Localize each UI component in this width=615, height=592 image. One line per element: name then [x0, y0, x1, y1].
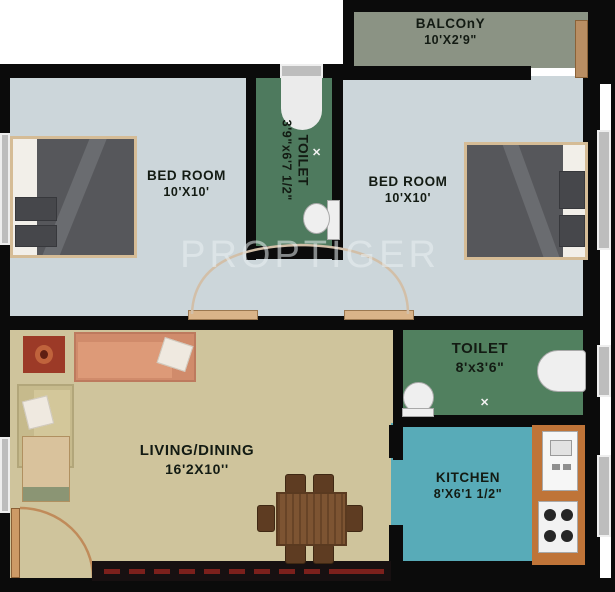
living-left-window: [0, 437, 10, 513]
dining-chair-icon: [345, 505, 363, 532]
toilet-right-wc-tank-icon: [402, 408, 434, 417]
dining-chair-icon: [285, 544, 306, 564]
dining-chair-icon: [313, 544, 334, 564]
bedroom-left-window: [0, 133, 10, 245]
kitchen-sink-icon: [542, 431, 578, 491]
sofa-top-icon: [74, 332, 196, 382]
kitchen-stub-bottom-wall: [389, 525, 403, 562]
balcony-door-leaf: [575, 20, 588, 78]
bedroom-left-label: BED ROOM 10'X10': [113, 168, 260, 201]
entry-mat: [92, 561, 391, 581]
toilet-top-label: TOILET 3'9"x6'7 1/2": [278, 100, 311, 220]
kitchen-stub-top-wall: [389, 425, 403, 458]
living-dining-label: LIVING/DINING 16'2X10'': [98, 442, 296, 478]
floor-plan: ✕ ✕ BALCOnY: [0, 0, 615, 592]
kitchen-label: KITCHEN 8'X6'1 1/2": [406, 470, 530, 503]
dining-chair-icon: [257, 505, 275, 532]
bedroom-right-door-sill: [344, 310, 414, 320]
cabinet-icon: [22, 436, 70, 502]
balcony-bottom-wall: [343, 66, 531, 80]
toilet-right-drain-icon: ✕: [480, 396, 489, 409]
toilet-right-window: [597, 345, 611, 397]
dining-table-icon: [276, 492, 347, 546]
main-door-leaf: [11, 508, 20, 578]
bedroom-right-window: [597, 130, 611, 250]
toilet-top-drain-icon: ✕: [312, 146, 321, 159]
toilet-right-sink-icon: [537, 350, 586, 392]
kitchen-window: [597, 455, 611, 537]
bed-right-icon: [464, 142, 588, 260]
stove-icon: [538, 501, 578, 553]
toilet-right-label: TOILET 8'x3'6": [420, 340, 540, 376]
balcony-label: BALCOnY 10'X2'9": [348, 16, 553, 49]
right-edge-wall: [611, 0, 615, 592]
bedroom-right-label: BED ROOM 10'X10': [338, 174, 478, 207]
balcony-top-wall: [343, 0, 612, 12]
mid-wall: [8, 316, 585, 330]
rug-icon: [23, 336, 65, 373]
bedroom-left-door-sill: [188, 310, 258, 320]
watermark-text: PROPTIGER: [150, 234, 470, 277]
dining-chair-icon: [313, 474, 334, 494]
